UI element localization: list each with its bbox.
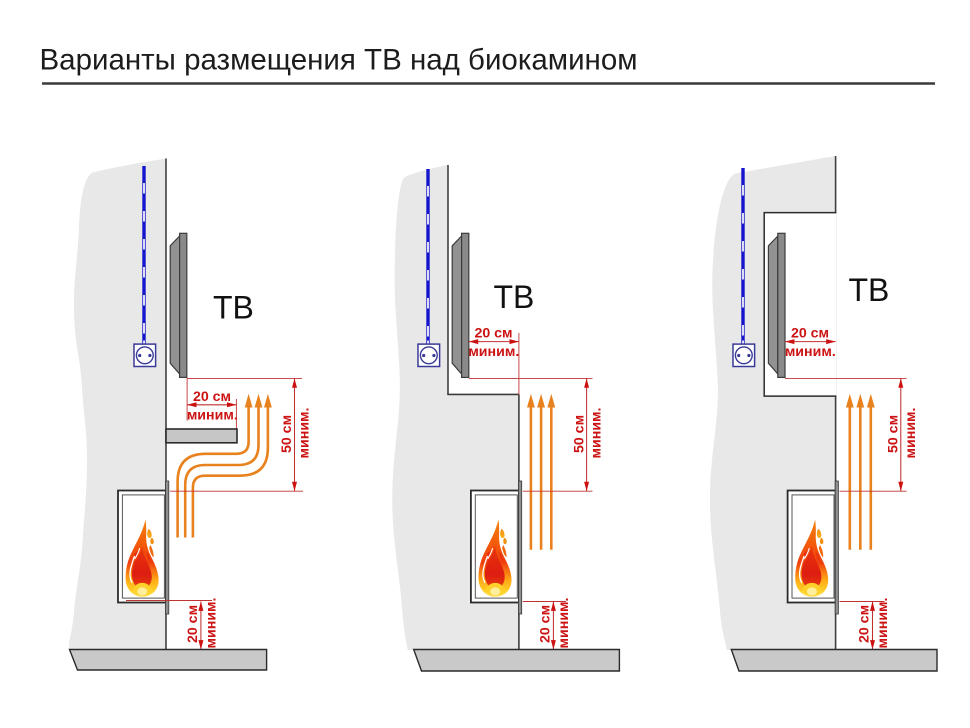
svg-text:ТВ: ТВ [494,279,535,315]
svg-text:миним.: миним. [187,408,238,424]
svg-text:миним.: миним. [903,408,919,459]
svg-text:50 см: 50 см [571,415,587,453]
svg-text:миним.: миним. [203,598,219,649]
svg-text:миним.: миним. [468,344,519,360]
svg-text:20 см: 20 см [185,605,201,643]
svg-text:50 см: 50 см [885,415,901,453]
svg-text:20 см: 20 см [791,326,829,342]
svg-text:миним.: миним. [296,408,312,459]
svg-text:Варианты размещения ТВ над био: Варианты размещения ТВ над биокамином [40,44,638,77]
svg-text:миним.: миним. [875,598,891,649]
svg-text:50 см: 50 см [279,415,295,453]
svg-text:миним.: миним. [589,408,605,459]
svg-text:20 см: 20 см [537,605,553,643]
svg-text:ТВ: ТВ [213,290,254,326]
svg-text:20 см: 20 см [856,605,872,643]
svg-text:миним.: миним. [556,598,572,649]
svg-text:миним.: миним. [785,344,836,360]
svg-text:ТВ: ТВ [849,272,890,308]
svg-text:20 см: 20 см [474,326,512,342]
svg-text:20 см: 20 см [193,389,231,405]
